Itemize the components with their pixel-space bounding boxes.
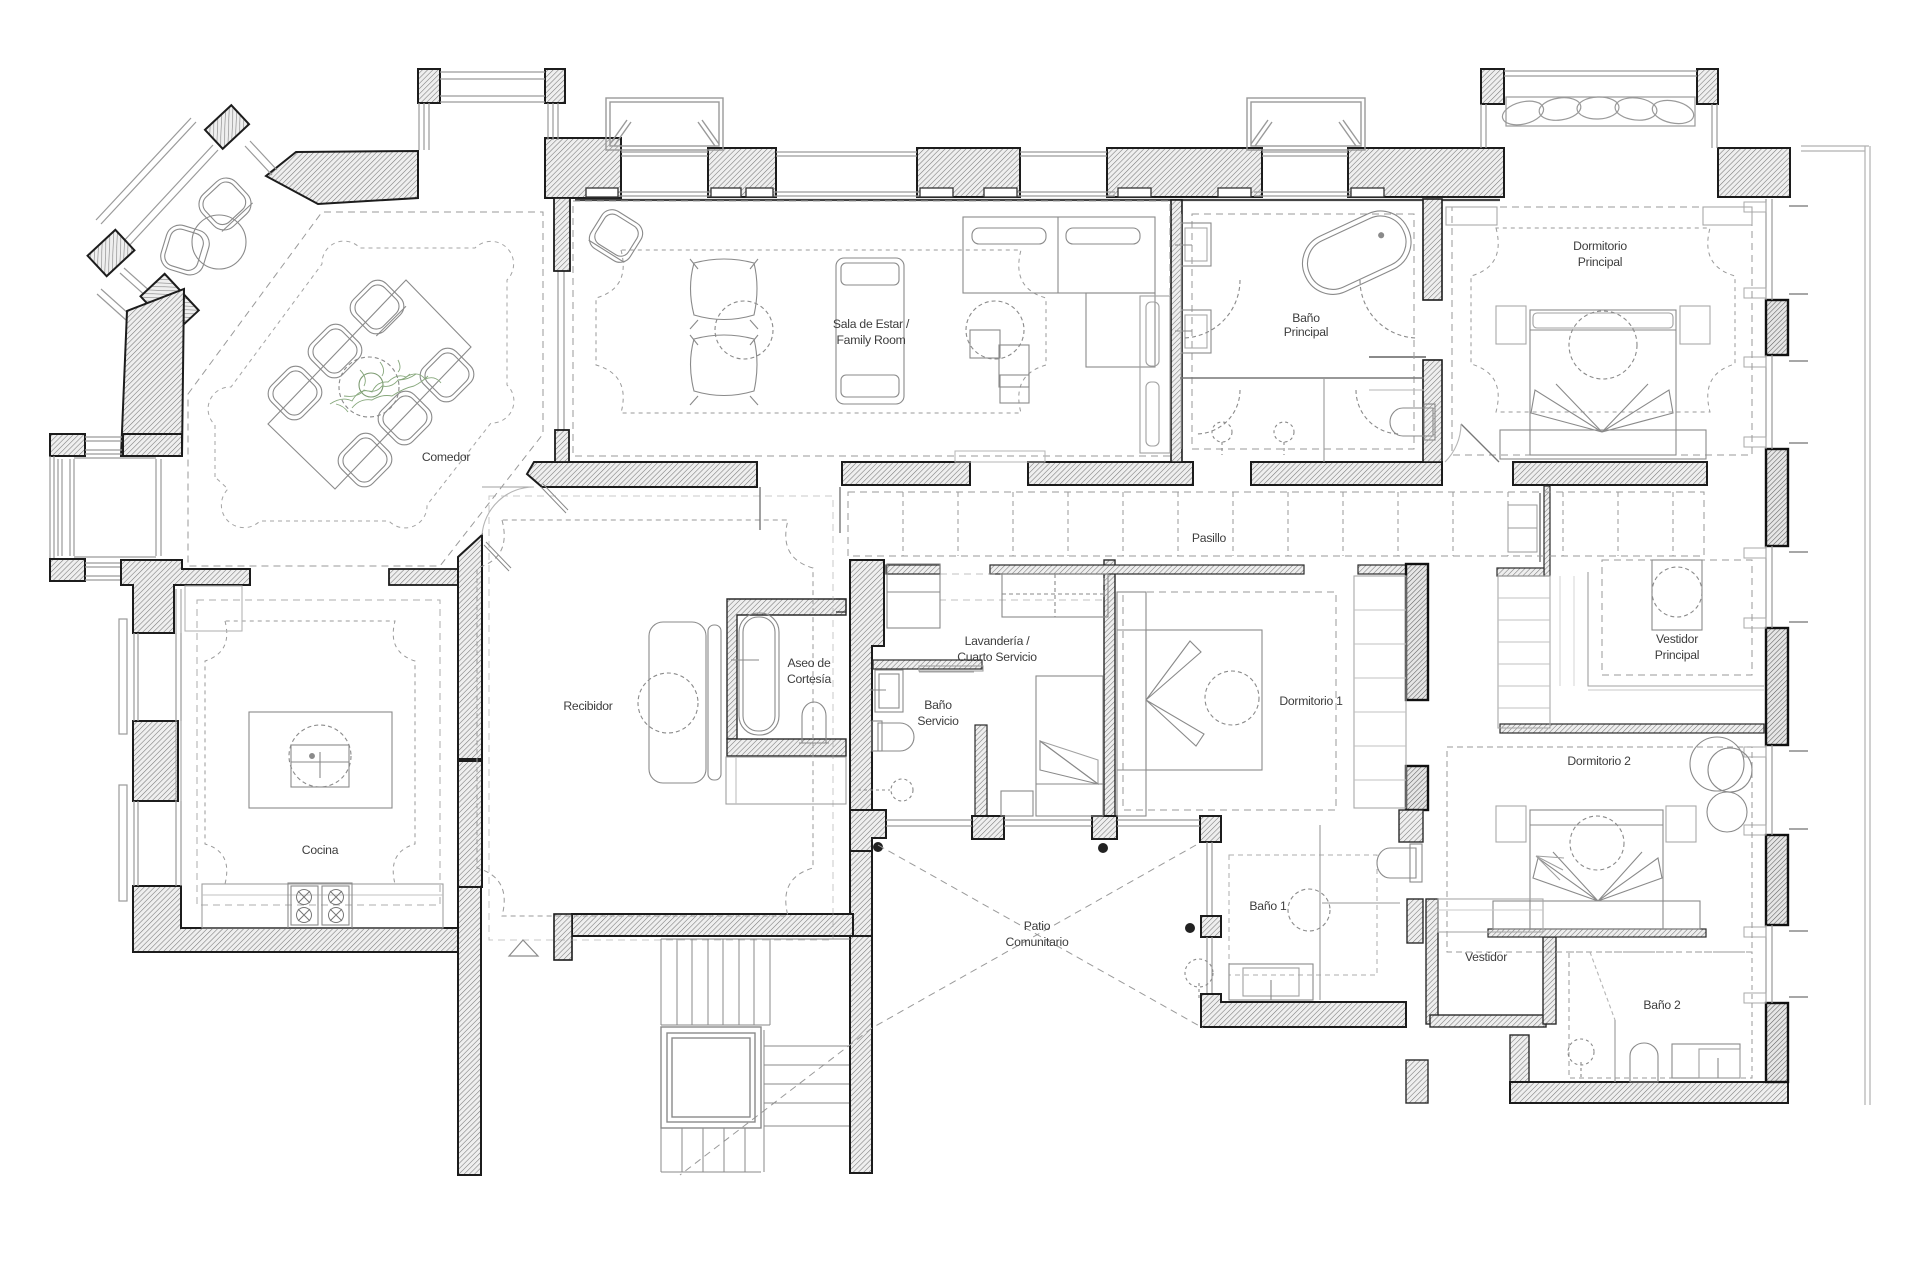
svg-text:Cuarto Servicio: Cuarto Servicio	[957, 650, 1037, 664]
svg-text:Family Room: Family Room	[836, 333, 905, 347]
svg-text:Comunitario: Comunitario	[1006, 935, 1069, 949]
svg-text:Comedor: Comedor	[422, 450, 471, 464]
svg-text:Cortesía: Cortesía	[787, 672, 832, 686]
svg-text:Principal: Principal	[1578, 255, 1623, 269]
svg-text:Recibidor: Recibidor	[563, 699, 612, 713]
svg-text:Baño 2: Baño 2	[1643, 998, 1681, 1012]
svg-text:Vestidor: Vestidor	[1656, 632, 1698, 646]
svg-text:Principal: Principal	[1284, 325, 1329, 339]
svg-text:Dormitorio 1: Dormitorio 1	[1279, 694, 1343, 708]
svg-text:Sala de Estar /: Sala de Estar /	[833, 317, 910, 331]
svg-text:Cocina: Cocina	[302, 843, 339, 857]
svg-text:Principal: Principal	[1655, 648, 1700, 662]
svg-text:Patio: Patio	[1024, 919, 1051, 933]
svg-text:Dormitorio 2: Dormitorio 2	[1567, 754, 1631, 768]
svg-text:Servicio: Servicio	[917, 714, 959, 728]
svg-text:Dormitorio: Dormitorio	[1573, 239, 1627, 253]
svg-text:Lavandería /: Lavandería /	[965, 634, 1031, 648]
svg-text:Baño: Baño	[924, 698, 952, 712]
svg-text:Vestidor: Vestidor	[1465, 950, 1507, 964]
svg-text:Aseo de: Aseo de	[788, 656, 831, 670]
svg-text:Pasillo: Pasillo	[1192, 531, 1227, 545]
svg-text:Baño: Baño	[1292, 311, 1320, 325]
svg-text:Baño 1: Baño 1	[1249, 899, 1287, 913]
